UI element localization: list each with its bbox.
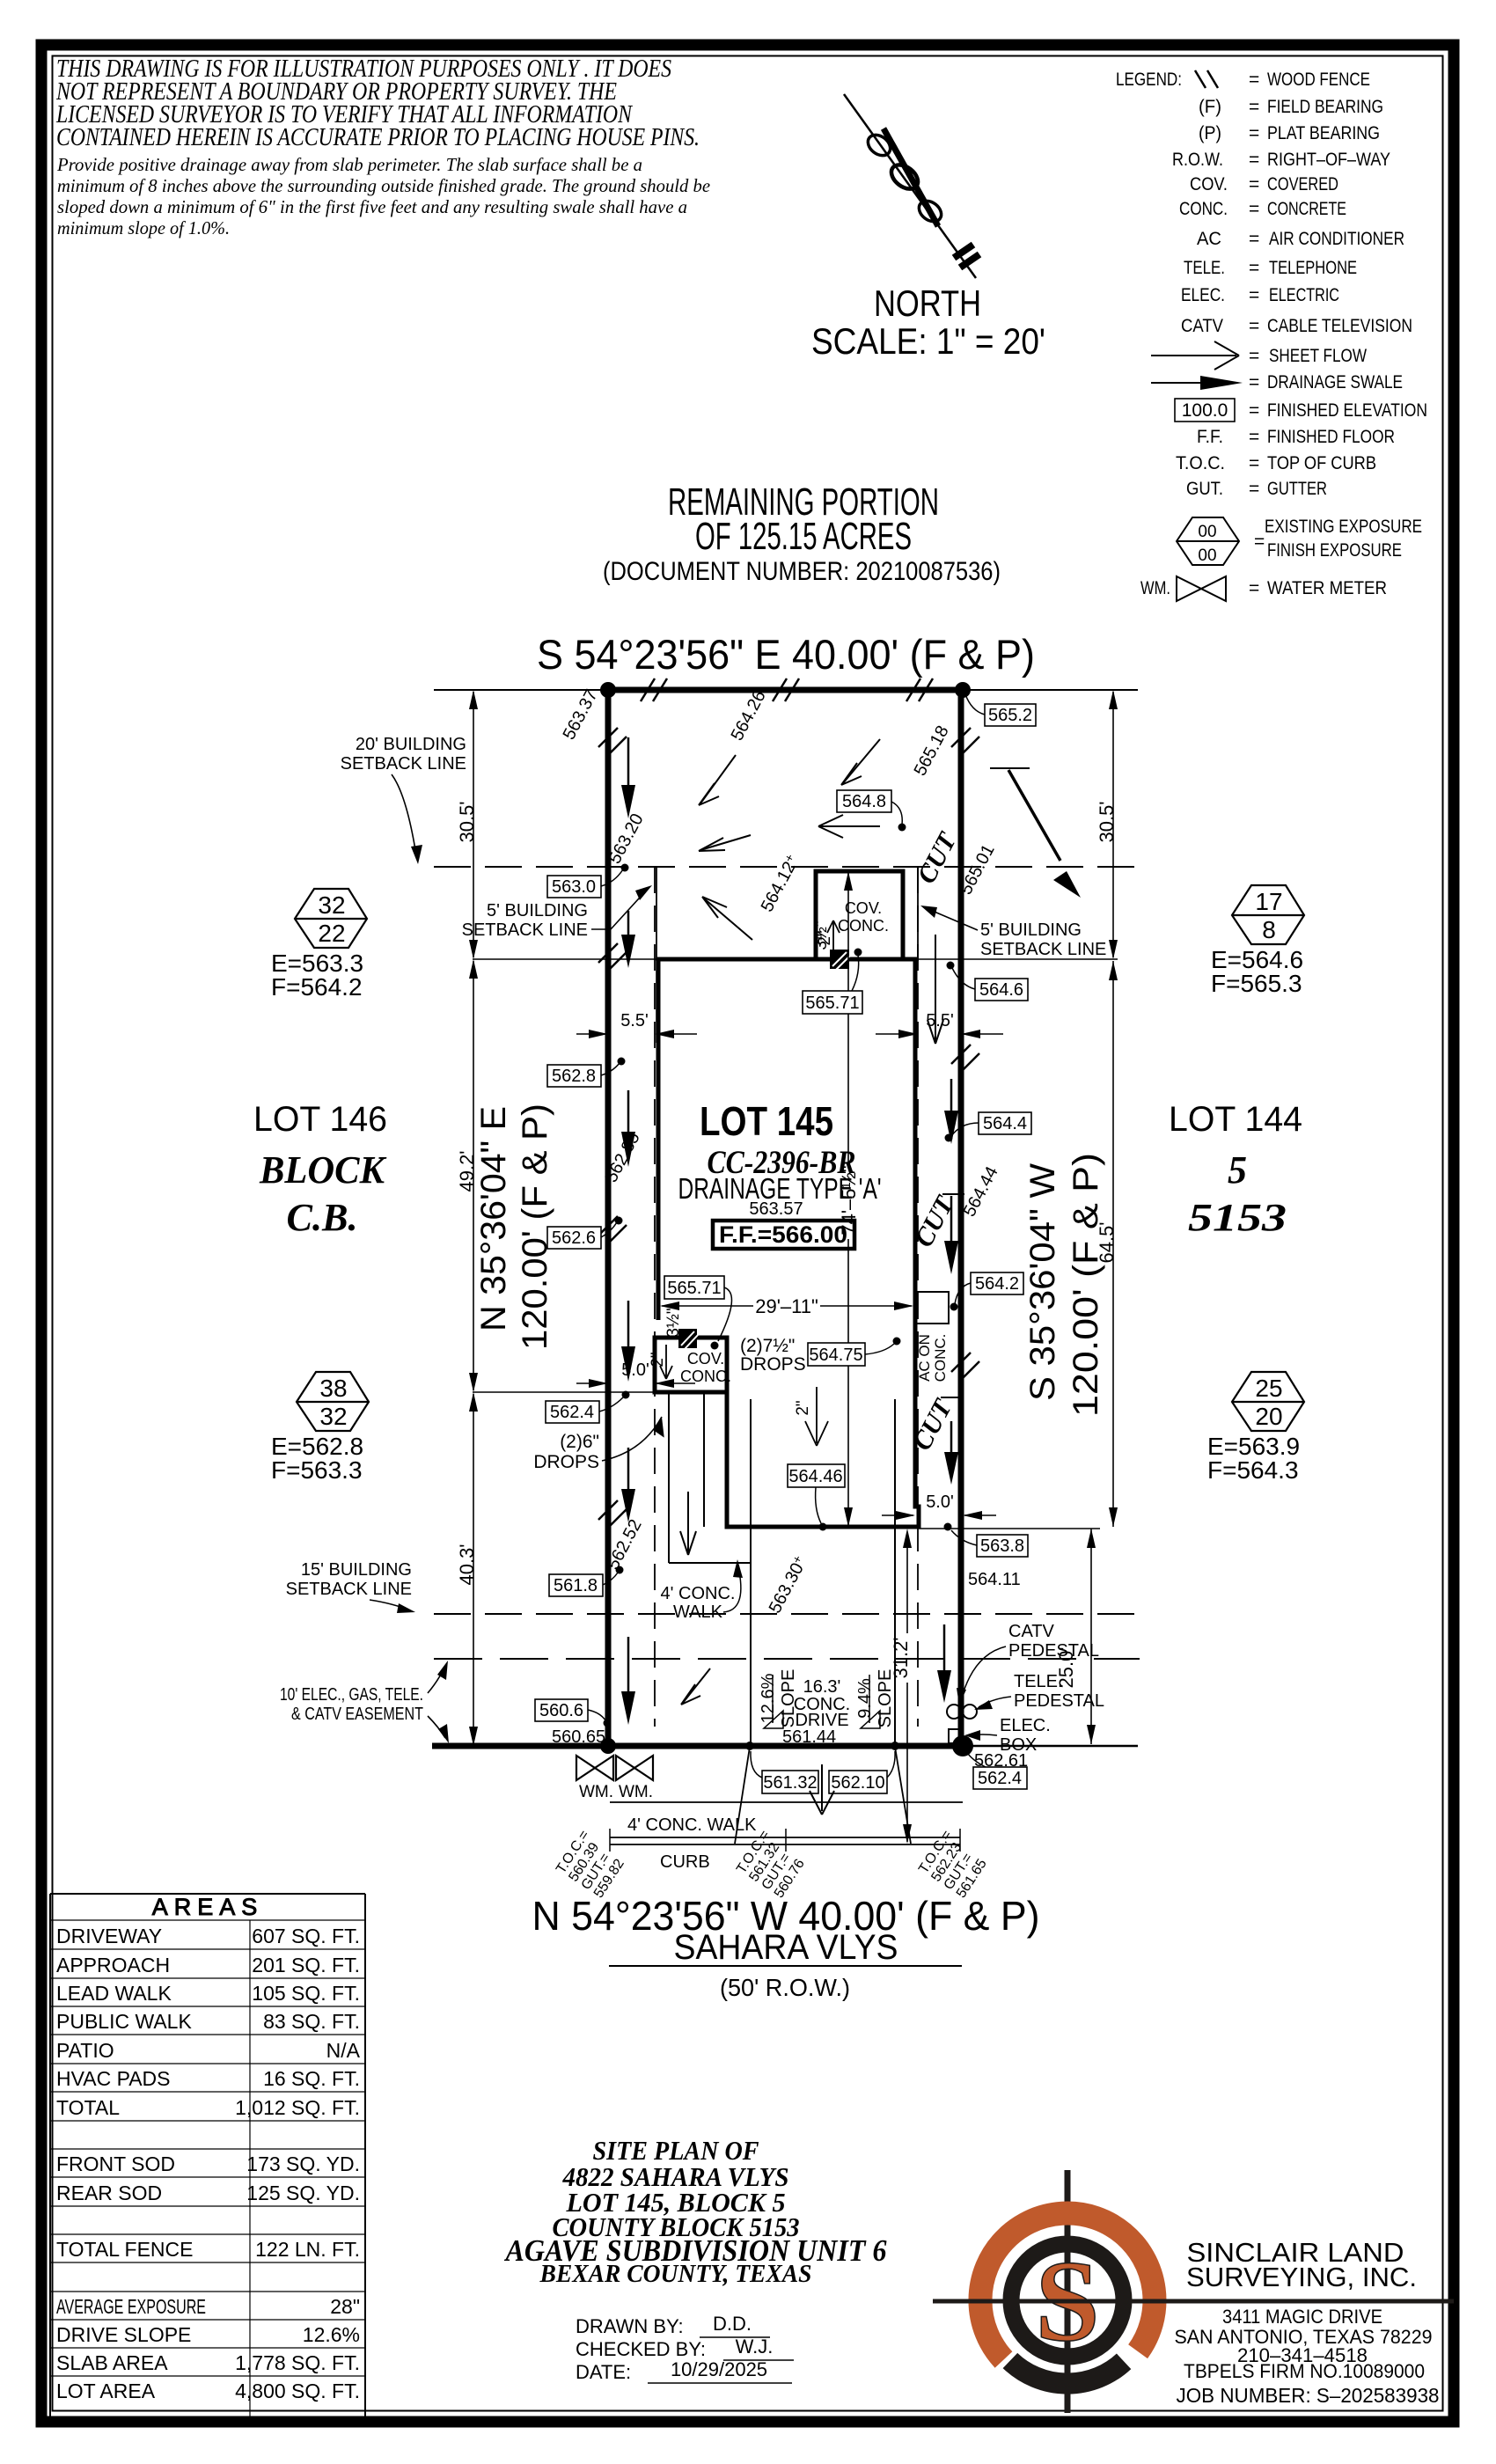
svg-text:(DOCUMENT NUMBER: 20210087536: (DOCUMENT NUMBER: 20210087536) — [603, 557, 1001, 586]
svg-text:12.6%: 12.6% — [759, 1673, 778, 1723]
svg-text:=: = — [1249, 70, 1259, 90]
svg-text:OF 125.15 ACRES: OF 125.15 ACRES — [695, 515, 912, 558]
svg-text:PUBLIC WALK: PUBLIC WALK — [56, 2010, 192, 2033]
svg-text:5153: 5153 — [1188, 1196, 1287, 1239]
svg-text:=: = — [1249, 578, 1259, 598]
svg-text:TBPELS FIRM NO.10089000: TBPELS FIRM NO.10089000 — [1184, 2360, 1425, 2382]
svg-text:CATV: CATV — [1181, 316, 1223, 336]
svg-text:=: = — [1249, 229, 1259, 249]
svg-text:GUT.: GUT. — [1186, 479, 1223, 499]
svg-text:560.6: 560.6 — [539, 1701, 583, 1720]
svg-text:LOT AREA: LOT AREA — [56, 2380, 156, 2402]
svg-text:T.O.C.: T.O.C. — [1176, 453, 1225, 473]
svg-text:125 SQ. YD.: 125 SQ. YD. — [246, 2182, 360, 2204]
svg-text:SLAB AREA: SLAB AREA — [56, 2351, 168, 2374]
svg-text:201 SQ. FT.: 201 SQ. FT. — [252, 1954, 360, 1976]
svg-text:F.F.=566.00: F.F.=566.00 — [719, 1221, 847, 1248]
svg-text:SHEET FLOW: SHEET FLOW — [1269, 346, 1367, 366]
svg-text:5.0': 5.0' — [926, 1492, 954, 1512]
svg-text:563.57: 563.57 — [749, 1199, 803, 1219]
svg-text:564.2: 564.2 — [975, 1274, 1019, 1294]
svg-text:CONTAINED HEREIN IS ACCURATE P: CONTAINED HEREIN IS ACCURATE PRIOR TO PL… — [56, 124, 700, 151]
svg-text:3411 MAGIC DRIVE: 3411 MAGIC DRIVE — [1222, 2306, 1382, 2328]
svg-text:22: 22 — [318, 920, 345, 947]
svg-text:8: 8 — [1262, 916, 1276, 943]
svg-text:LEAD WALK: LEAD WALK — [56, 1982, 172, 2005]
svg-text:sloped down a minimum of 6" in: sloped down a minimum of 6" in the first… — [57, 196, 687, 217]
svg-text:F=564.3: F=564.3 — [1207, 1456, 1299, 1484]
svg-text:2": 2" — [649, 1352, 667, 1367]
svg-text:564.4: 564.4 — [983, 1114, 1027, 1133]
svg-text:SETBACK LINE: SETBACK LINE — [462, 920, 588, 940]
svg-text:minimum slope of 1.0%.: minimum slope of 1.0%. — [57, 217, 230, 238]
svg-text:SURVEYING, INC.: SURVEYING, INC. — [1186, 2262, 1417, 2292]
svg-text:LOT 146: LOT 146 — [253, 1100, 387, 1139]
svg-text:25: 25 — [1255, 1375, 1282, 1402]
svg-text:562.4: 562.4 — [978, 1769, 1022, 1788]
svg-text:AC: AC — [1197, 229, 1221, 249]
svg-text:minimum of 8 inches above the: minimum of 8 inches above the surroundin… — [57, 175, 710, 196]
svg-text:16 SQ. FT.: 16 SQ. FT. — [263, 2067, 360, 2090]
svg-text:TELE.: TELE. — [1184, 258, 1225, 278]
svg-text:563.8: 563.8 — [980, 1536, 1024, 1556]
svg-text:=: = — [1249, 316, 1259, 336]
svg-text:WALK: WALK — [673, 1602, 723, 1622]
svg-text:120.00' (F & P): 120.00' (F & P) — [1067, 1153, 1105, 1417]
svg-text:(F): (F) — [1199, 97, 1221, 117]
svg-text:WM.: WM. — [579, 1783, 613, 1801]
svg-text:COV.: COV. — [845, 899, 882, 917]
svg-text:SAHARA VLYS: SAHARA VLYS — [674, 1928, 898, 1967]
svg-text:TOTAL: TOTAL — [56, 2096, 120, 2119]
svg-text:FRONT SOD: FRONT SOD — [56, 2152, 175, 2175]
svg-text:REAR SOD: REAR SOD — [56, 2182, 162, 2204]
svg-text:15' BUILDING: 15' BUILDING — [301, 1560, 412, 1580]
svg-text:=: = — [1249, 346, 1259, 366]
svg-text:=: = — [1249, 174, 1259, 194]
svg-text:562.10: 562.10 — [831, 1773, 884, 1793]
svg-text:ELECTRIC: ELECTRIC — [1269, 285, 1339, 305]
svg-text:TOP OF CURB: TOP OF CURB — [1267, 453, 1376, 473]
svg-text:564.6: 564.6 — [979, 980, 1023, 1000]
svg-text:32: 32 — [319, 1403, 347, 1430]
svg-text:BOX: BOX — [1000, 1735, 1037, 1755]
svg-text:(2)6": (2)6" — [560, 1432, 599, 1452]
svg-text:3½": 3½" — [812, 920, 831, 950]
svg-text:30.5': 30.5' — [456, 801, 478, 842]
svg-text:SETBACK LINE: SETBACK LINE — [980, 940, 1106, 959]
svg-text:CONC.: CONC. — [680, 1368, 731, 1385]
svg-text:20: 20 — [1255, 1403, 1282, 1430]
svg-text:PATIO: PATIO — [56, 2039, 114, 2062]
svg-text:561.8: 561.8 — [554, 1576, 598, 1595]
svg-text:562.6: 562.6 — [552, 1228, 596, 1248]
svg-text:00: 00 — [1198, 523, 1216, 541]
svg-text:30.5': 30.5' — [1096, 801, 1118, 842]
svg-text:LOT 144: LOT 144 — [1169, 1100, 1302, 1139]
svg-text:105 SQ. FT.: 105 SQ. FT. — [252, 1982, 360, 2005]
svg-text:=: = — [1249, 150, 1259, 170]
svg-text:AIR CONDITIONER: AIR CONDITIONER — [1269, 229, 1404, 249]
svg-text:564.8: 564.8 — [842, 792, 886, 811]
svg-text:607 SQ. FT.: 607 SQ. FT. — [252, 1925, 360, 1947]
svg-text:74'–5½": 74'–5½" — [838, 1165, 860, 1235]
svg-text:CONC.: CONC. — [1179, 199, 1228, 219]
svg-text:WM.: WM. — [619, 1783, 653, 1801]
svg-text:SCALE: 1" = 20': SCALE: 1" = 20' — [811, 320, 1045, 362]
svg-text:CABLE TELEVISION: CABLE TELEVISION — [1267, 316, 1412, 336]
svg-text:560.65: 560.65 — [552, 1727, 605, 1747]
svg-text:20' BUILDING: 20' BUILDING — [356, 735, 466, 754]
svg-text:TOTAL FENCE: TOTAL FENCE — [56, 2238, 194, 2261]
svg-text:=: = — [1249, 400, 1259, 421]
svg-text:HVAC PADS: HVAC PADS — [56, 2067, 171, 2090]
svg-text:1,012 SQ. FT.: 1,012 SQ. FT. — [235, 2096, 360, 2119]
svg-text:DRIVE: DRIVE — [795, 1711, 848, 1730]
svg-text:PLAT BEARING: PLAT BEARING — [1267, 123, 1380, 143]
svg-text:=: = — [1249, 258, 1259, 278]
svg-text:AREAS: AREAS — [152, 1894, 264, 1920]
svg-text:(50' R.O.W.): (50' R.O.W.) — [720, 1974, 850, 2001]
svg-text:PEDESTAL: PEDESTAL — [1008, 1641, 1099, 1661]
svg-text:F.F.: F.F. — [1197, 427, 1223, 447]
svg-text:29'–11": 29'–11" — [755, 1295, 818, 1317]
svg-text:F=563.3: F=563.3 — [271, 1456, 363, 1484]
svg-text:CONC.: CONC. — [932, 1334, 949, 1382]
svg-text:=: = — [1254, 532, 1265, 552]
svg-text:ELEC.: ELEC. — [1181, 285, 1225, 305]
svg-text:F=564.2: F=564.2 — [271, 973, 363, 1001]
svg-text:SLOPE: SLOPE — [876, 1669, 895, 1728]
svg-text:16.3': 16.3' — [803, 1677, 841, 1697]
svg-text:PEDESTAL: PEDESTAL — [1014, 1691, 1104, 1711]
svg-text:12.6%: 12.6% — [303, 2323, 360, 2346]
svg-text:N/A: N/A — [326, 2039, 361, 2062]
svg-text:565.71: 565.71 — [805, 994, 859, 1013]
svg-text:SETBACK LINE: SETBACK LINE — [286, 1580, 412, 1599]
svg-text:10/29/2025: 10/29/2025 — [671, 2358, 767, 2380]
svg-text:DATE:: DATE: — [576, 2361, 631, 2383]
svg-text:FINISH EXPOSURE: FINISH EXPOSURE — [1267, 540, 1402, 561]
svg-text:564.75: 564.75 — [809, 1346, 862, 1365]
svg-text:W.J.: W.J. — [736, 2336, 774, 2358]
svg-text:RIGHT–OF–WAY: RIGHT–OF–WAY — [1267, 150, 1390, 170]
svg-text:565.71: 565.71 — [667, 1279, 721, 1298]
svg-text:5.5': 5.5' — [620, 1011, 649, 1030]
svg-text:FINISHED ELEVATION: FINISHED ELEVATION — [1267, 400, 1427, 421]
svg-text:=: = — [1249, 479, 1259, 499]
svg-text:=: = — [1249, 199, 1259, 219]
svg-text:DROPS: DROPS — [740, 1354, 806, 1375]
svg-text:100.0: 100.0 — [1182, 400, 1228, 421]
svg-text:BEXAR COUNTY, TEXAS: BEXAR COUNTY, TEXAS — [539, 2260, 812, 2288]
svg-text:1,778 SQ. FT.: 1,778 SQ. FT. — [235, 2351, 360, 2374]
svg-text:JOB NUMBER: S–202583938: JOB NUMBER: S–202583938 — [1177, 2384, 1440, 2407]
svg-text:561.32: 561.32 — [763, 1773, 817, 1793]
svg-text:LEGEND:: LEGEND: — [1116, 70, 1182, 90]
svg-text:SETBACK LINE: SETBACK LINE — [341, 754, 466, 774]
svg-text:S 35°36'04" W: S 35°36'04" W — [1023, 1163, 1062, 1401]
svg-text:COVERED: COVERED — [1267, 174, 1338, 194]
svg-text:DRAWN BY:: DRAWN BY: — [576, 2315, 684, 2337]
svg-text:F=565.3: F=565.3 — [1211, 970, 1302, 997]
svg-text:CURB: CURB — [660, 1852, 710, 1872]
svg-text:=: = — [1249, 372, 1259, 392]
svg-text:32: 32 — [318, 891, 345, 919]
svg-text:DROPS: DROPS — [533, 1452, 599, 1472]
svg-text:17: 17 — [1255, 888, 1282, 915]
svg-text:83 SQ. FT.: 83 SQ. FT. — [263, 2010, 360, 2033]
svg-text:563.0: 563.0 — [552, 877, 596, 897]
svg-text:LOT 145: LOT 145 — [700, 1098, 833, 1144]
svg-text:DRIVEWAY: DRIVEWAY — [56, 1925, 162, 1947]
svg-text:(P): (P) — [1199, 123, 1221, 143]
svg-text:=: = — [1249, 427, 1259, 447]
svg-text:TELEPHONE: TELEPHONE — [1269, 258, 1357, 278]
svg-text:561.44: 561.44 — [782, 1727, 836, 1747]
svg-text:CATV: CATV — [1008, 1622, 1055, 1641]
svg-text:CONC.: CONC. — [838, 917, 889, 935]
svg-text:28": 28" — [330, 2295, 360, 2318]
svg-text:AVERAGE EXPOSURE: AVERAGE EXPOSURE — [56, 2295, 206, 2318]
svg-text:5: 5 — [1228, 1148, 1247, 1192]
svg-text:NORTH: NORTH — [874, 282, 981, 324]
svg-text:& CATV EASEMENT: & CATV EASEMENT — [291, 1705, 423, 1724]
svg-text:AC ON: AC ON — [916, 1334, 933, 1382]
svg-text:565.2: 565.2 — [988, 706, 1032, 725]
svg-text:EXISTING EXPOSURE: EXISTING EXPOSURE — [1265, 517, 1422, 537]
svg-text:3½": 3½" — [664, 1308, 683, 1337]
svg-text:BLOCK: BLOCK — [259, 1148, 387, 1192]
svg-text:S 54°23'56" E 40.00' (F & P): S 54°23'56" E 40.00' (F & P) — [537, 631, 1035, 678]
svg-text:564.46: 564.46 — [788, 1467, 842, 1486]
svg-text:4' CONC.: 4' CONC. — [661, 1584, 736, 1603]
svg-text:D.D.: D.D. — [713, 2313, 752, 2335]
svg-text:CHECKED BY:: CHECKED BY: — [576, 2338, 706, 2360]
svg-text:N 35°36'04" E: N 35°36'04" E — [474, 1106, 513, 1331]
svg-text:R.O.W.: R.O.W. — [1172, 150, 1223, 170]
svg-text:WOOD FENCE: WOOD FENCE — [1267, 70, 1370, 90]
svg-text:9.4%: 9.4% — [855, 1678, 875, 1719]
svg-text:=: = — [1249, 123, 1259, 143]
svg-text:122 LN. FT.: 122 LN. FT. — [255, 2238, 360, 2261]
svg-text:173 SQ. YD.: 173 SQ. YD. — [246, 2152, 360, 2175]
svg-text:564.11: 564.11 — [968, 1570, 1021, 1589]
svg-text:C.B.: C.B. — [287, 1196, 358, 1239]
svg-text:5' BUILDING: 5' BUILDING — [980, 920, 1082, 940]
svg-text:DRIVE SLOPE: DRIVE SLOPE — [56, 2323, 191, 2346]
svg-text:=: = — [1249, 453, 1259, 473]
svg-text:=: = — [1249, 285, 1259, 305]
svg-text:40.3': 40.3' — [456, 1544, 478, 1585]
svg-text:2": 2" — [794, 1400, 812, 1415]
svg-text:CONCRETE: CONCRETE — [1267, 199, 1346, 219]
svg-text:38: 38 — [319, 1375, 347, 1402]
svg-text:4' CONC. WALK: 4' CONC. WALK — [627, 1815, 757, 1835]
svg-text:TELE.: TELE. — [1014, 1672, 1063, 1691]
svg-text:4,800 SQ. FT.: 4,800 SQ. FT. — [235, 2380, 360, 2402]
svg-text:FIELD BEARING: FIELD BEARING — [1267, 97, 1383, 117]
svg-text:=: = — [1249, 97, 1259, 117]
svg-text:FINISHED FLOOR: FINISHED FLOOR — [1267, 427, 1395, 447]
svg-text:5' BUILDING: 5' BUILDING — [487, 901, 588, 920]
svg-text:(2)7½": (2)7½" — [740, 1336, 795, 1356]
svg-text:DRAINAGE SWALE: DRAINAGE SWALE — [1267, 372, 1403, 392]
svg-text:562.4: 562.4 — [550, 1403, 594, 1422]
svg-text:WATER METER: WATER METER — [1267, 578, 1387, 598]
svg-text:Provide positive drainage away: Provide positive drainage away from slab… — [56, 154, 642, 175]
svg-text:00: 00 — [1198, 546, 1216, 565]
svg-text:COV.: COV. — [1190, 174, 1228, 194]
svg-text:APPROACH: APPROACH — [56, 1954, 170, 1976]
svg-text:WM.: WM. — [1140, 578, 1170, 598]
svg-text:562.8: 562.8 — [552, 1067, 596, 1086]
svg-text:ELEC.: ELEC. — [1000, 1716, 1051, 1735]
svg-text:10' ELEC., GAS, TELE.: 10' ELEC., GAS, TELE. — [280, 1685, 423, 1705]
svg-text:GUTTER: GUTTER — [1267, 479, 1327, 499]
svg-text:COV.: COV. — [687, 1350, 724, 1368]
